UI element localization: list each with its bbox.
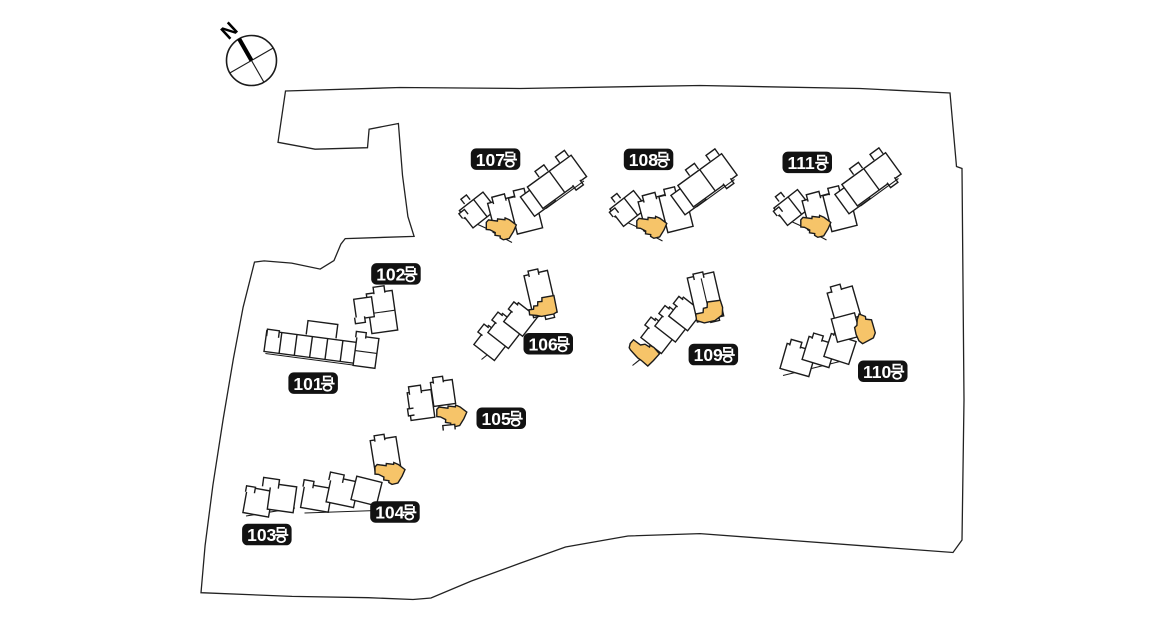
svg-text:105: 105 — [482, 409, 511, 429]
svg-text:106: 106 — [529, 334, 558, 354]
svg-text:101: 101 — [293, 374, 322, 394]
svg-text:110: 110 — [863, 362, 891, 382]
svg-text:109: 109 — [694, 345, 723, 365]
svg-text:103: 103 — [247, 525, 276, 545]
svg-text:102: 102 — [376, 265, 405, 285]
svg-text:111: 111 — [788, 153, 816, 173]
svg-text:107: 107 — [476, 150, 505, 170]
svg-text:104: 104 — [375, 503, 404, 523]
svg-text:108: 108 — [629, 150, 658, 170]
